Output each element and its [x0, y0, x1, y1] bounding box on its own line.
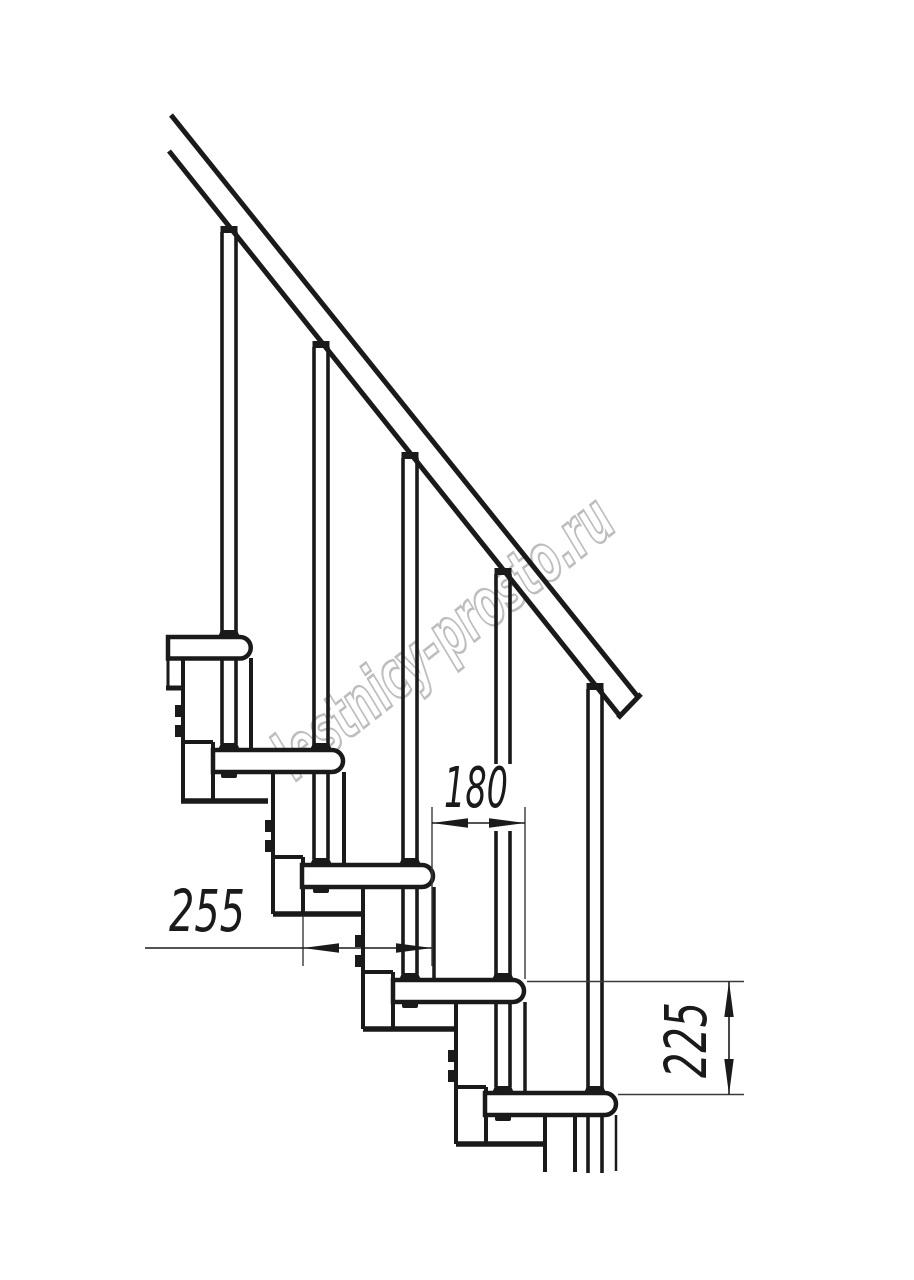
arrowhead-down [724, 1059, 733, 1095]
rod-collar [399, 858, 421, 865]
tread [393, 980, 524, 1002]
tread [168, 637, 251, 659]
arrowhead-left [303, 943, 339, 953]
rod-base-collar [399, 973, 421, 980]
tread [213, 750, 343, 772]
drawing-canvas: lestnicy-prosto.ru [0, 0, 914, 1280]
handrail-end-cap [618, 694, 641, 718]
rod-nut [313, 887, 329, 893]
dimension-depth-label: 255 [169, 877, 245, 945]
rod-collar [584, 1086, 606, 1093]
rod-nut [221, 772, 237, 778]
dimension-rise-label: 225 [652, 1002, 720, 1078]
rod-base-collar [310, 858, 332, 865]
rod-nut [402, 1002, 418, 1008]
baluster-rod [496, 574, 510, 1087]
rod-base-collar [218, 743, 240, 750]
rod-collar [218, 630, 240, 637]
rod-collar [492, 973, 514, 980]
baluster-rod [403, 458, 417, 974]
support-module [545, 1115, 616, 1172]
staircase-drawing: lestnicy-prosto.ru [0, 0, 914, 1280]
tread [485, 1093, 616, 1115]
tread [302, 865, 433, 887]
rod-nut [495, 1115, 511, 1121]
dimension-run-label: 180 [444, 756, 508, 821]
baluster-rod [222, 232, 236, 744]
dimension-rise-225: 225 [527, 982, 744, 1095]
arrowhead-up [724, 982, 733, 1018]
support-module [166, 658, 268, 801]
rod-collar [310, 743, 332, 750]
arrowhead-right [396, 943, 432, 953]
dimension-depth-255: 255 [145, 877, 432, 966]
rod-base-collar [492, 1086, 514, 1093]
